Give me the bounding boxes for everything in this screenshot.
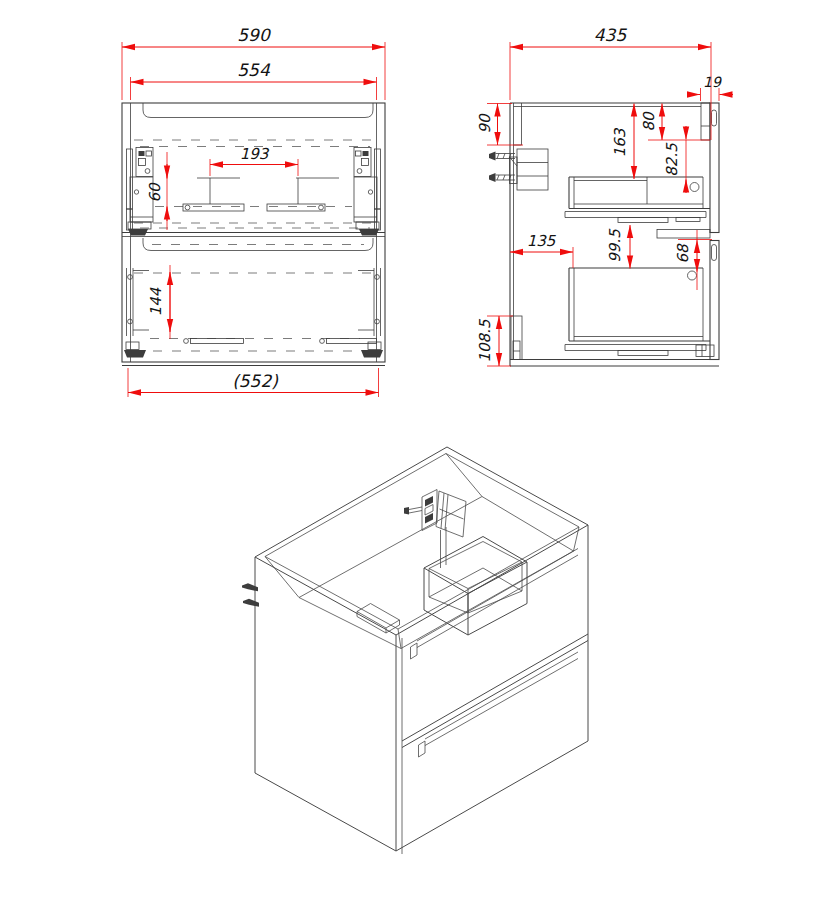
side-view: 435 19 90 163 80 82.5 [476,25,734,366]
dim-lower-bracket-height: 144 [147,265,170,339]
dim-label-163: 163 [611,127,629,157]
dim-label-144: 144 [147,287,165,316]
dim-front-rail-height: 80 [640,104,663,141]
dim-label-80: 80 [640,111,658,132]
drawing-sheet: 590 554 193 60 144 (55 [0,0,832,900]
front-panel-strip [710,103,719,360]
dim-label-68: 68 [674,243,692,264]
dim-back-rail-height: 90 [476,104,524,146]
iso-cabinet-silhouette [255,447,588,851]
corner-bracket-lower-left [124,268,149,358]
iso-back-screws [242,583,259,607]
technical-drawing-canvas: 590 554 193 60 144 (55 [0,0,832,900]
front-view: 590 554 193 60 144 (55 [122,25,385,397]
iso-handle-lower [419,652,579,757]
dim-label-108-5: 108.5 [476,318,494,362]
dim-back-to-drawer: 135 [510,232,573,269]
dim-label-60: 60 [146,182,164,203]
dim-top-to-drawer: 163 [611,104,635,180]
handle-groove-top [143,103,373,118]
wall-bracket-side [510,149,549,190]
mid-rail-side [657,230,710,239]
dim-label-554: 554 [237,60,271,80]
dim-label-552: (552) [232,371,278,391]
dim-label-99-5: 99.5 [606,228,624,263]
lower-drawer-section [565,268,710,356]
bottom-back-bracket [511,316,522,360]
center-brackets [183,178,339,211]
front-top-rail [701,103,710,140]
dim-label-435: 435 [594,25,628,45]
dim-bottom-bracket: 108.5 [476,316,513,366]
dim-overall-depth: 435 [510,25,711,140]
corner-bracket-lower-right [358,268,383,358]
dim-hole-offset: 68 [674,230,713,290]
back-hanging-rail [514,103,522,145]
drawer-divider [122,233,385,251]
dim-groove-width: 554 [131,60,377,100]
upper-drawer-section [565,177,710,223]
dim-label-19: 19 [703,74,722,90]
iso-top-rim [255,454,588,636]
lower-mid-tabs [184,339,377,344]
dim-internal-width: (552) [128,368,379,397]
dim-label-135: 135 [527,232,557,250]
dim-center-span: 193 [210,145,298,177]
dim-label-90: 90 [476,113,494,134]
dim-label-193: 193 [240,145,270,163]
dim-label-82-5: 82.5 [663,142,681,177]
mounting-hole-lower [688,271,697,280]
cabinet-outline-front [122,103,385,366]
iso-drawer-divider [402,634,588,748]
dim-upper-bracket-height: 60 [146,152,168,230]
isometric-view [242,447,588,854]
iso-interior [265,454,579,649]
wall-screw-lower [489,173,515,182]
mounting-hole-upper [690,183,699,192]
dim-front-panel-thickness: 19 [687,74,733,101]
dim-label-590: 590 [237,25,272,45]
dim-drawer-gap: 99.5 [606,225,630,269]
iso-wall-bracket [404,490,466,538]
